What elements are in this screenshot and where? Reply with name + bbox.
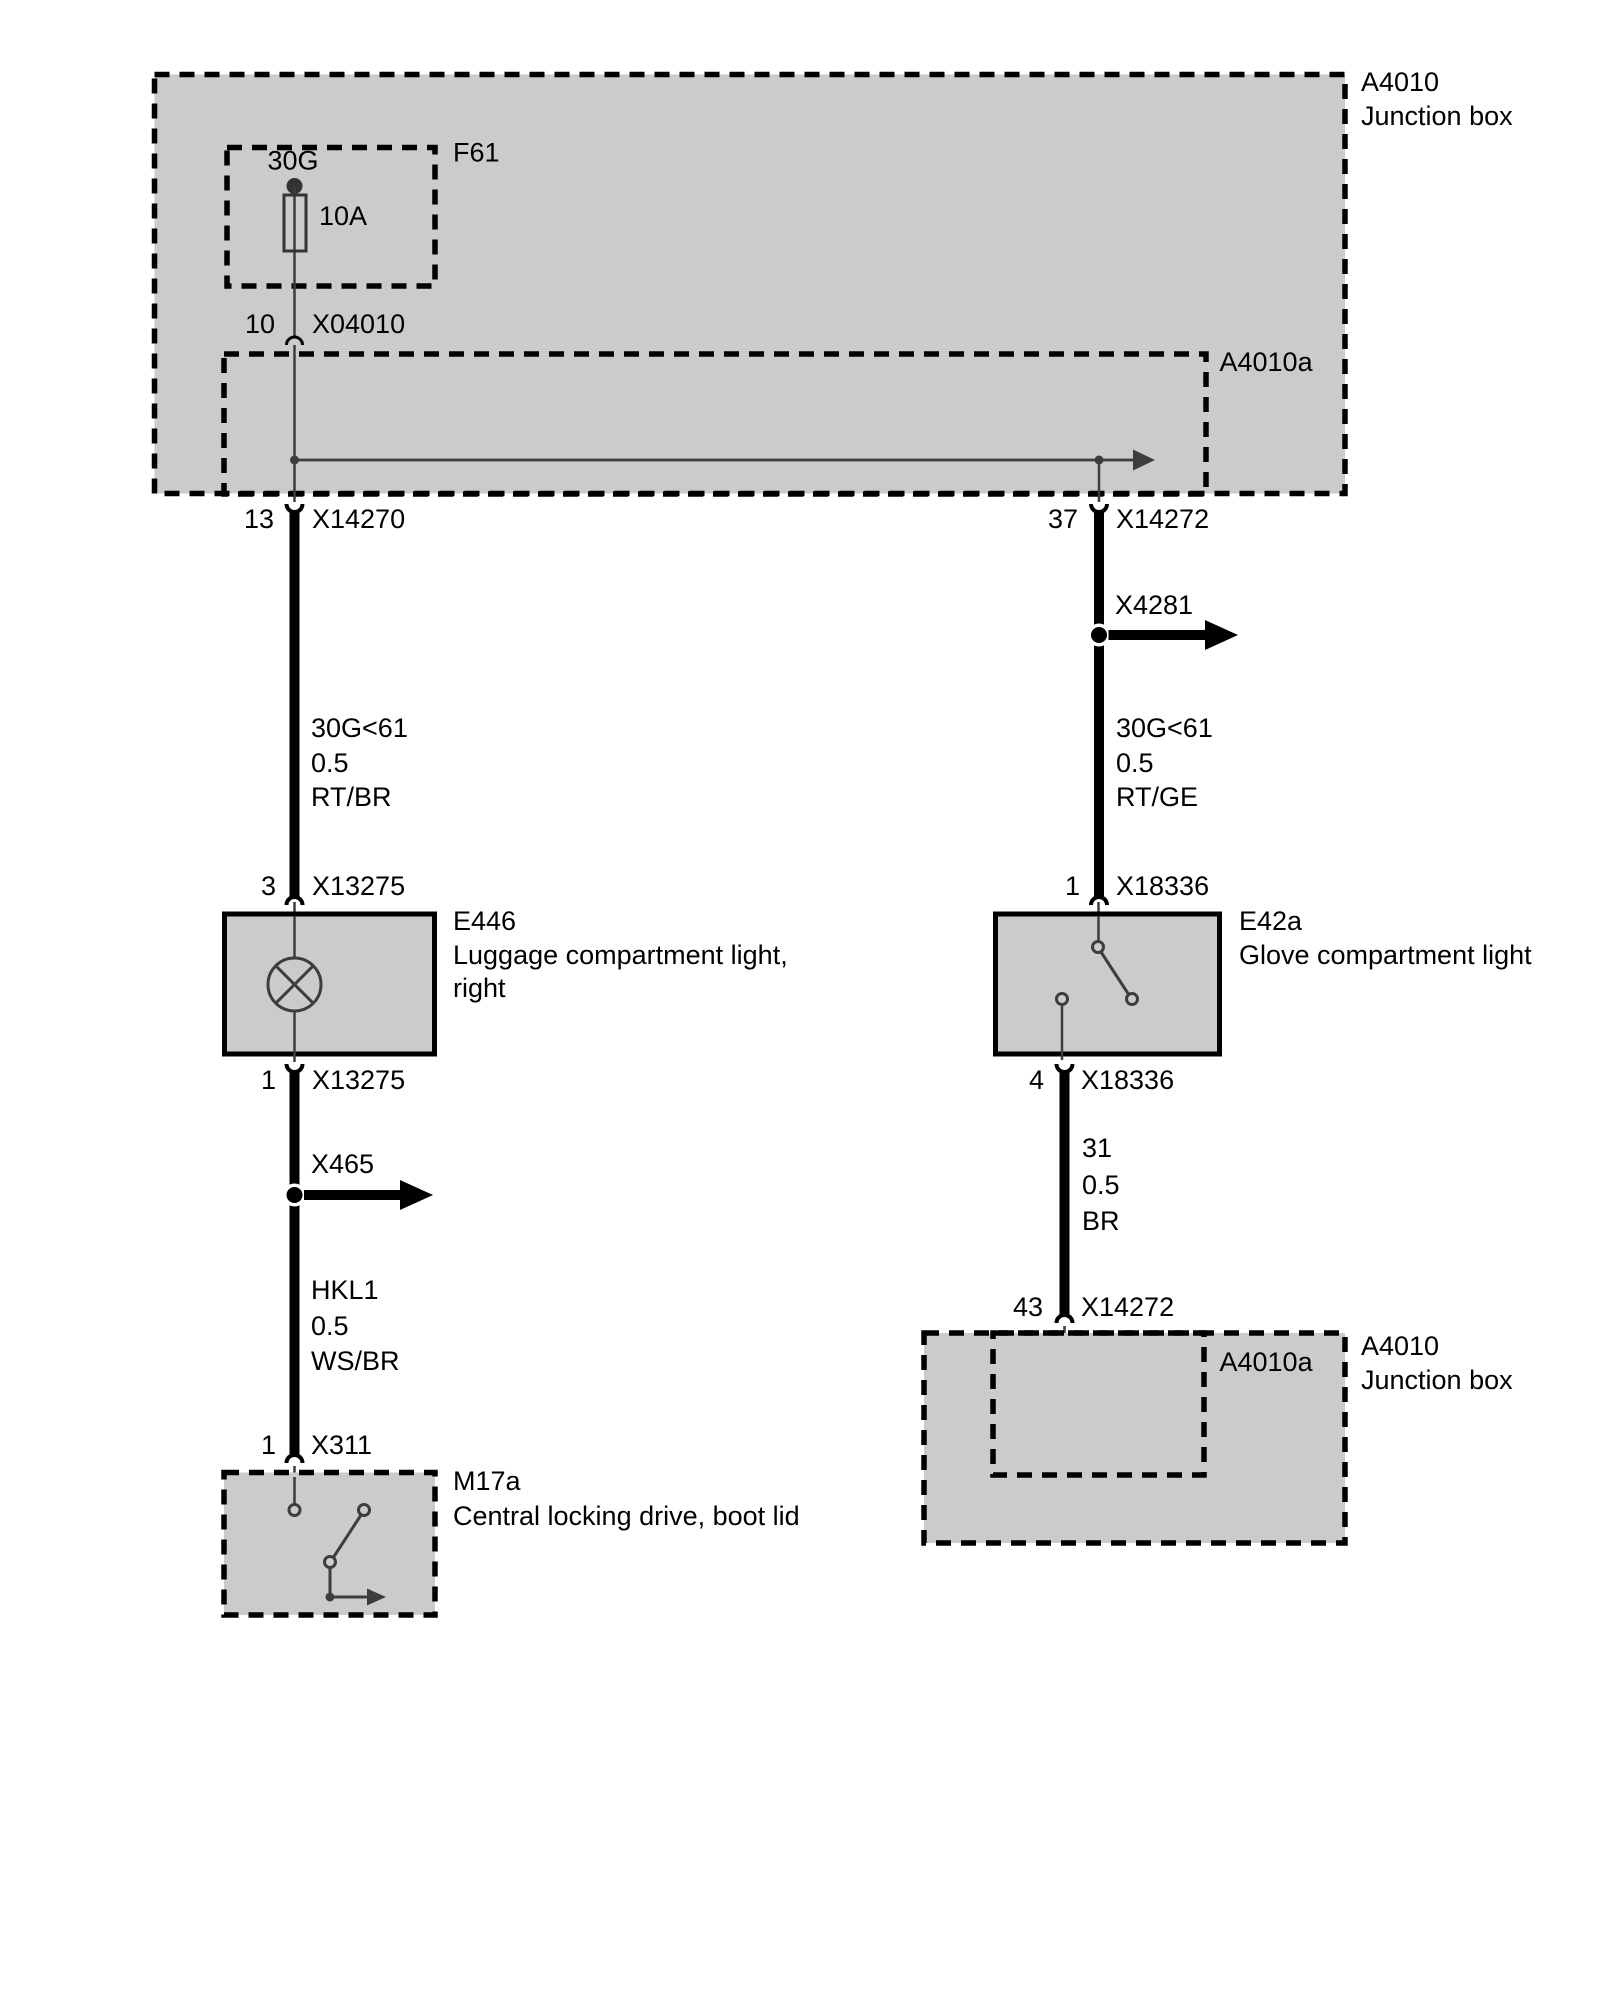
svg-text:HKL1: HKL1 [311,1275,379,1305]
svg-text:3: 3 [261,871,276,901]
svg-text:X465: X465 [311,1149,374,1179]
svg-text:10: 10 [245,309,275,339]
svg-text:30G<61: 30G<61 [311,713,408,743]
svg-text:X13275: X13275 [312,1065,405,1095]
svg-text:X18336: X18336 [1116,871,1209,901]
svg-text:Central locking drive, boot li: Central locking drive, boot lid [453,1501,800,1531]
svg-text:37: 37 [1048,504,1078,534]
svg-text:M17a: M17a [453,1466,522,1496]
svg-text:X13275: X13275 [312,871,405,901]
svg-text:10A: 10A [319,201,367,231]
svg-text:1: 1 [261,1065,276,1095]
svg-text:X311: X311 [311,1430,372,1460]
svg-text:0.5: 0.5 [311,748,349,778]
svg-text:0.5: 0.5 [1082,1170,1120,1200]
svg-text:A4010: A4010 [1361,1331,1439,1361]
svg-text:Junction box: Junction box [1361,101,1513,131]
svg-text:Junction box: Junction box [1361,1365,1513,1395]
svg-text:A4010a: A4010a [1220,1347,1314,1377]
svg-text:X4281: X4281 [1115,590,1193,620]
svg-text:E446: E446 [453,906,516,936]
svg-text:X18336: X18336 [1081,1065,1174,1095]
svg-text:A4010a: A4010a [1220,347,1314,377]
svg-text:30G<61: 30G<61 [1116,713,1213,743]
svg-text:X04010: X04010 [312,309,405,339]
svg-text:X14272: X14272 [1116,504,1209,534]
svg-text:4: 4 [1029,1065,1044,1095]
svg-text:13: 13 [244,504,274,534]
svg-text:Glove compartment light: Glove compartment light [1239,940,1532,970]
svg-text:F61: F61 [453,138,500,168]
svg-text:43: 43 [1013,1292,1043,1322]
svg-text:E42a: E42a [1239,906,1303,936]
svg-text:RT/BR: RT/BR [311,782,392,812]
svg-text:1: 1 [1065,871,1080,901]
svg-text:RT/GE: RT/GE [1116,782,1198,812]
svg-text:31: 31 [1082,1133,1112,1163]
svg-text:1: 1 [261,1430,276,1460]
svg-text:BR: BR [1082,1206,1120,1236]
svg-text:A4010: A4010 [1361,67,1439,97]
svg-text:0.5: 0.5 [311,1311,349,1341]
svg-text:Luggage compartment light,: Luggage compartment light, [453,940,788,970]
svg-text:X14270: X14270 [312,504,405,534]
svg-text:WS/BR: WS/BR [311,1346,400,1376]
svg-text:30G: 30G [267,146,318,176]
svg-text:X14272: X14272 [1081,1292,1174,1322]
svg-text:0.5: 0.5 [1116,748,1154,778]
svg-text:right: right [453,973,506,1003]
